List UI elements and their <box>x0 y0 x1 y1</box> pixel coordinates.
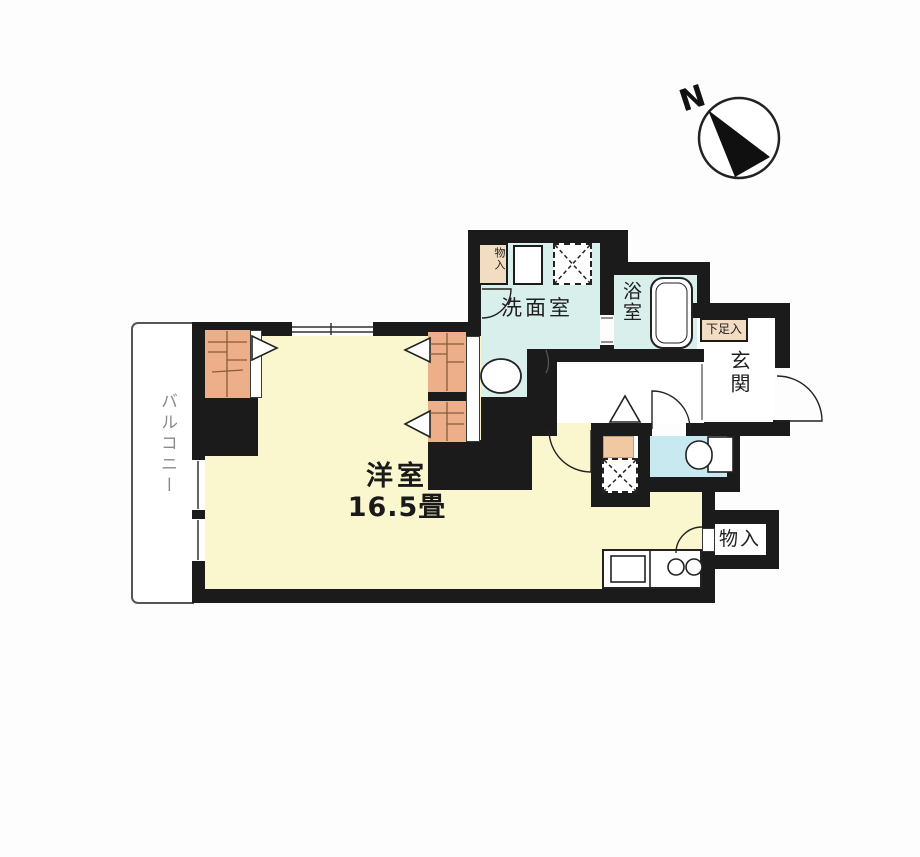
closet-right-lower <box>428 401 466 442</box>
closet-left <box>205 330 250 398</box>
storage-top-label: 物入 <box>483 247 505 283</box>
toilet-floor <box>650 436 727 477</box>
shoe-storage-label: 下足入 <box>700 321 748 339</box>
wall-main-left-upper <box>192 322 205 460</box>
washer-space-box <box>513 245 543 285</box>
main-room-name: 洋室 <box>366 461 428 492</box>
wall-main-bottom <box>192 589 715 603</box>
washroom-label: 洗面室 <box>478 294 596 322</box>
wall-basin-nook-east <box>527 349 557 397</box>
refrigerator-place-icon <box>602 458 638 493</box>
wall-washblock-top <box>468 230 628 243</box>
counter-step-box <box>603 436 634 458</box>
washing-machine-place-icon <box>553 243 592 285</box>
main-room-label: 洋室 16.5畳 <box>292 452 502 532</box>
closet-right-door-slit <box>466 336 480 442</box>
wall-outer-right-upper <box>775 318 790 368</box>
wall-storage2-left-lower <box>702 552 715 603</box>
main-room-floor-under-toilet <box>650 492 702 507</box>
entrance-label: 玄関 <box>722 350 750 420</box>
floor-plan-page: バルコニー <box>0 0 920 857</box>
balcony-label: バルコニー <box>144 392 176 602</box>
closet-right-upper <box>428 332 466 392</box>
storage-bottom-label: 物入 <box>712 526 768 554</box>
main-room-size: 16.5畳 <box>348 492 447 523</box>
wall-entrance-top <box>690 303 790 318</box>
wall-main-left-mid <box>192 510 205 519</box>
wall-hall-bottom-east <box>686 423 704 436</box>
wall-outer-right-corner <box>773 420 790 436</box>
wall-storage2-left-upper <box>702 490 715 528</box>
closet-left-door-slit <box>250 330 262 398</box>
compass-north-label: N <box>675 75 724 122</box>
washroom-basin-nook <box>481 349 527 397</box>
bathroom-label: 浴室 <box>613 281 641 343</box>
window-glass-lines <box>292 323 373 335</box>
wall-bath-top <box>614 262 710 275</box>
wall-core-mass-joint <box>481 430 532 444</box>
wall-right-closet-divider <box>428 392 468 401</box>
kitchen-counter <box>602 549 702 589</box>
wall-wash-bath-divider-upper <box>600 243 614 315</box>
wall-below-fridge <box>591 492 650 507</box>
wall-toilet-bottom <box>638 477 740 492</box>
wall-entrance-bottom <box>704 422 775 436</box>
wall-below-left-closet <box>205 398 258 456</box>
hallway-floor <box>557 362 704 423</box>
wall-toilet-right <box>727 436 740 492</box>
